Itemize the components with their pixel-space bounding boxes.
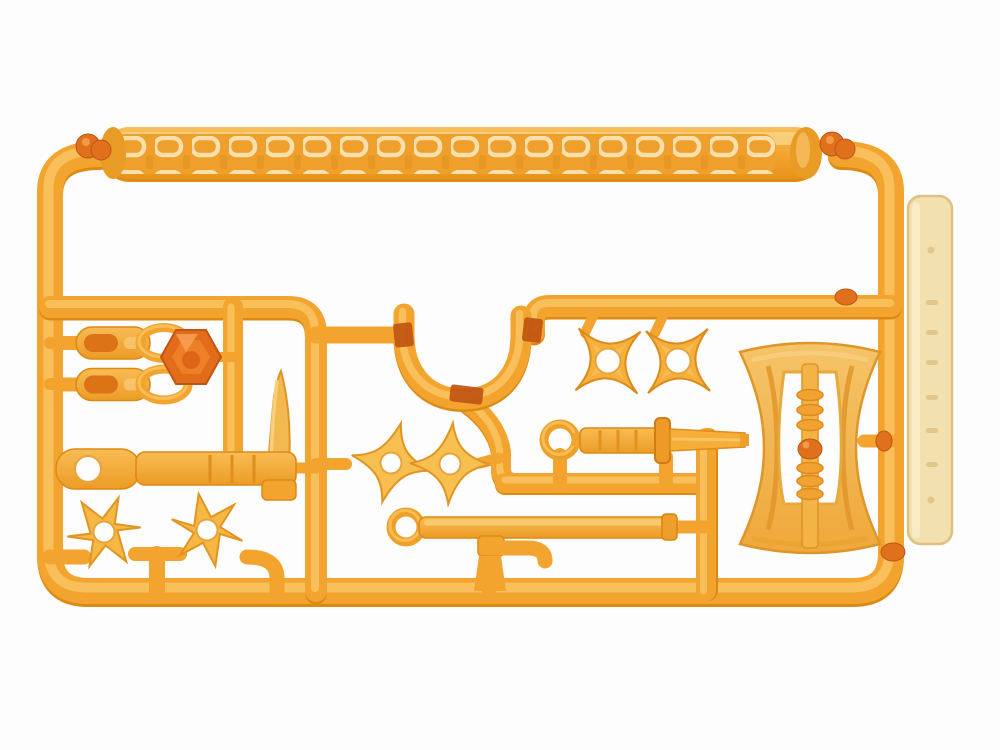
six-point-shuriken-2 [158, 481, 256, 579]
molded-tag [908, 196, 952, 544]
chain-strip [76, 127, 855, 182]
square-shuriken-1 [575, 328, 640, 393]
chain-links [115, 136, 775, 174]
runner-rail-b [231, 307, 233, 454]
gate-bump-right-rail [835, 289, 857, 305]
pinwheel-shuriken-2 [407, 420, 492, 506]
sprue-illustration [0, 0, 1000, 750]
scabbard-rod [390, 511, 677, 543]
sprue-knob-right [820, 132, 855, 159]
runner-rail-h [704, 438, 709, 591]
gate-bump-bottom-right [881, 543, 905, 561]
great-axe [740, 343, 880, 553]
sword-handle [580, 428, 660, 453]
gate-band-right [522, 317, 544, 343]
axe-gate-knob [876, 431, 892, 451]
u-piece [393, 312, 544, 406]
gate-band-left [393, 322, 414, 348]
axe-center-knob [798, 439, 822, 459]
square-shuriken-2 [646, 329, 710, 393]
hex-connector [161, 330, 221, 384]
sword-guard [655, 418, 670, 463]
runner-lower-rail [505, 480, 706, 485]
runner-branch-curve [466, 400, 518, 486]
product-photo-stage [0, 0, 1000, 750]
